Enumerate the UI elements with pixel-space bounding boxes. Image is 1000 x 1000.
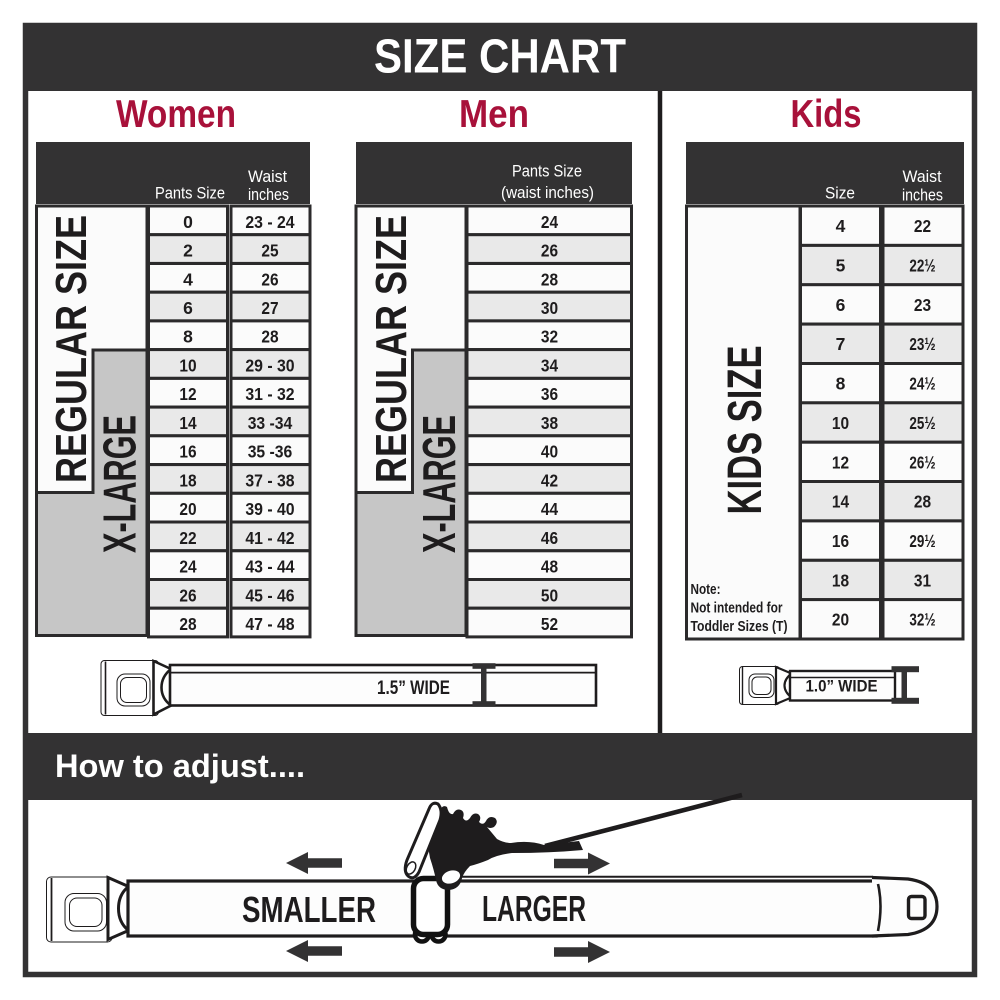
svg-text:1.0” WIDE: 1.0” WIDE [806,677,878,696]
svg-text:29½: 29½ [909,531,935,551]
svg-text:24: 24 [179,557,196,577]
svg-text:SIZE CHART: SIZE CHART [374,31,626,84]
svg-text:47 - 48: 47 - 48 [245,614,294,634]
svg-text:39 - 40: 39 - 40 [245,499,294,519]
svg-text:Kids: Kids [791,93,862,136]
svg-text:Not intended for: Not intended for [691,600,783,617]
svg-text:25: 25 [261,241,278,261]
svg-text:31 - 32: 31 - 32 [245,384,294,404]
svg-text:46: 46 [541,528,558,548]
svg-text:31: 31 [914,570,931,590]
svg-text:50: 50 [541,585,558,605]
svg-text:23½: 23½ [909,334,935,354]
svg-text:32½: 32½ [909,610,935,630]
svg-text:18: 18 [179,470,196,490]
svg-text:Women: Women [116,93,236,136]
svg-text:(waist inches): (waist inches) [501,184,594,202]
svg-text:24½: 24½ [909,374,935,394]
svg-text:20: 20 [179,499,196,519]
svg-text:26: 26 [541,241,558,261]
svg-text:8: 8 [836,374,846,394]
svg-text:2: 2 [183,241,193,261]
svg-text:10: 10 [179,355,196,375]
svg-text:X-LARGE: X-LARGE [413,415,465,553]
svg-text:30: 30 [541,298,558,318]
svg-text:32: 32 [541,327,558,347]
svg-text:38: 38 [541,413,558,433]
svg-text:28: 28 [261,327,278,347]
svg-text:5: 5 [836,255,846,275]
svg-text:43 - 44: 43 - 44 [245,557,294,577]
svg-text:27: 27 [261,298,278,318]
svg-text:Note:: Note: [691,581,721,598]
svg-text:23: 23 [914,295,931,315]
svg-text:26: 26 [261,269,278,289]
svg-text:Pants Size: Pants Size [512,163,582,181]
svg-text:Toddler Sizes (T): Toddler Sizes (T) [691,618,788,635]
svg-text:35 -36: 35 -36 [248,442,293,462]
svg-text:28: 28 [914,492,931,512]
svg-text:LARGER: LARGER [482,888,586,929]
svg-text:34: 34 [541,355,558,375]
svg-text:7: 7 [836,334,846,354]
svg-text:REGULAR SIZE: REGULAR SIZE [47,215,96,483]
svg-text:SMALLER: SMALLER [242,889,376,930]
svg-text:Men: Men [459,93,529,136]
svg-text:18: 18 [832,570,849,590]
svg-text:How to adjust....: How to adjust.... [55,748,305,784]
svg-text:20: 20 [832,610,849,630]
svg-text:28: 28 [541,269,558,289]
svg-text:Waist: Waist [903,168,942,186]
svg-text:12: 12 [179,384,196,404]
svg-text:inches: inches [902,187,943,205]
svg-text:4: 4 [183,269,193,289]
svg-text:16: 16 [832,531,849,551]
svg-text:28: 28 [179,614,196,634]
svg-text:Size: Size [825,185,855,203]
svg-text:inches: inches [248,186,289,204]
svg-text:6: 6 [183,298,193,318]
svg-text:KIDS SIZE: KIDS SIZE [719,346,772,515]
svg-text:12: 12 [832,452,849,472]
svg-text:25½: 25½ [909,413,935,433]
svg-text:36: 36 [541,384,558,404]
svg-text:48: 48 [541,557,558,577]
svg-text:1.5” WIDE: 1.5” WIDE [377,678,450,699]
svg-text:22: 22 [914,216,931,236]
svg-text:REGULAR SIZE: REGULAR SIZE [367,215,416,483]
svg-text:22: 22 [179,528,196,548]
svg-text:37 - 38: 37 - 38 [245,470,294,490]
svg-text:8: 8 [183,327,193,347]
svg-text:45 - 46: 45 - 46 [245,585,294,605]
svg-text:41 - 42: 41 - 42 [245,528,294,548]
svg-text:Waist: Waist [248,168,287,186]
svg-text:52: 52 [541,614,558,634]
svg-text:10: 10 [832,413,849,433]
svg-text:26½: 26½ [909,452,935,472]
svg-text:40: 40 [541,442,558,462]
svg-text:0: 0 [183,212,193,232]
svg-text:29 - 30: 29 - 30 [245,355,294,375]
svg-text:6: 6 [836,295,846,315]
svg-text:24: 24 [541,212,558,232]
svg-text:44: 44 [541,499,558,519]
svg-text:14: 14 [179,413,196,433]
svg-text:26: 26 [179,585,196,605]
svg-text:Pants Size: Pants Size [155,185,225,203]
svg-text:4: 4 [836,216,846,236]
svg-text:33 -34: 33 -34 [248,413,293,433]
svg-text:X-LARGE: X-LARGE [94,415,146,553]
svg-text:22½: 22½ [909,255,935,275]
svg-text:16: 16 [179,442,196,462]
svg-text:23 - 24: 23 - 24 [245,212,294,232]
svg-text:14: 14 [832,492,849,512]
svg-text:42: 42 [541,470,558,490]
